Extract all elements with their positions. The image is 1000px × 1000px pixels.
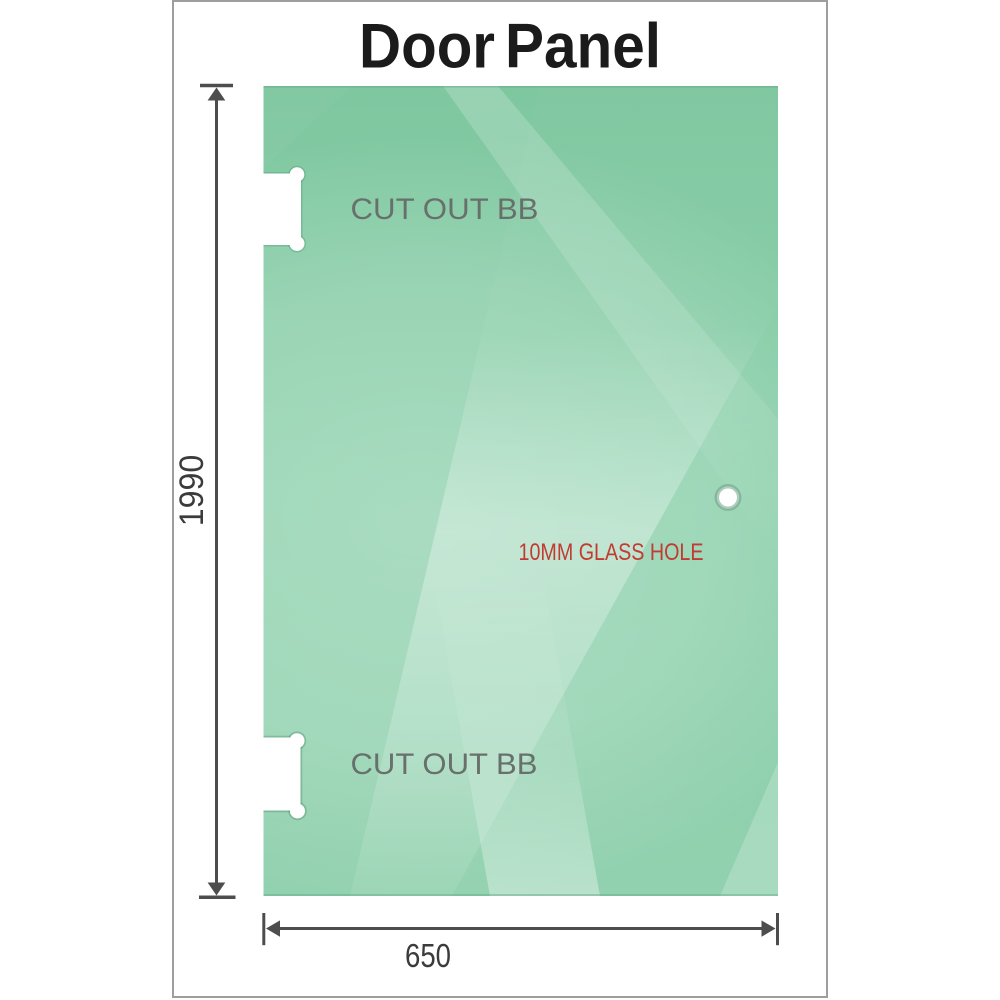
svg-text:Door: Door	[359, 12, 495, 82]
svg-text:1990: 1990	[173, 455, 211, 527]
svg-text:650: 650	[405, 937, 451, 974]
svg-text:CUT OUT BB: CUT OUT BB	[351, 193, 539, 226]
svg-text:10MM GLASS HOLE: 10MM GLASS HOLE	[519, 539, 704, 566]
svg-text:Panel: Panel	[505, 12, 661, 82]
svg-text:CUT OUT BB: CUT OUT BB	[351, 748, 538, 781]
